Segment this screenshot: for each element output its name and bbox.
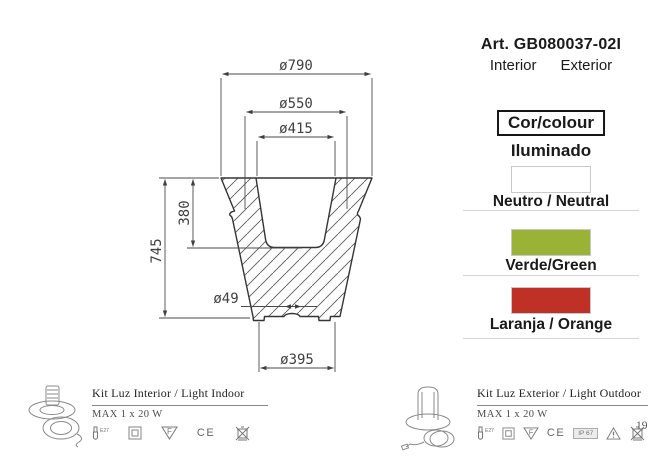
indoor-max-power: MAX 1 x 20 W — [92, 409, 292, 420]
svg-text:F: F — [529, 427, 534, 436]
ce-mark: CE — [547, 427, 565, 439]
swatch-orange — [511, 287, 591, 314]
swatch-neutral-label: Neutro / Neutral — [438, 193, 663, 211]
colour-header-box: Cor/colour — [497, 110, 605, 136]
divider — [463, 210, 639, 211]
indoor-light-illustration — [20, 384, 88, 448]
outdoor-light-kit-block: Kit Luz Exterior / Light Outdoor MAX 1 x… — [394, 382, 656, 454]
class-ii-icon — [502, 427, 515, 440]
illuminated-label: Iluminado — [438, 141, 663, 161]
swatch-orange-label: Laranja / Orange — [438, 316, 663, 334]
dim-top-diameter: ø790 — [279, 58, 313, 74]
swatch-green — [511, 229, 591, 256]
page-number: 19 — [636, 420, 648, 432]
dim-opening-diameter: ø415 — [279, 121, 313, 137]
divider — [463, 338, 639, 339]
divider — [477, 405, 648, 406]
warning-triangle-icon — [606, 427, 621, 440]
ip67-badge: IP 67 — [573, 428, 598, 439]
catalog-page: ø790 ø550 ø415 380 745 ø49 ø395 Art. GB0… — [0, 0, 663, 457]
dim-base-diameter: ø395 — [280, 352, 314, 368]
outdoor-light-illustration — [396, 384, 468, 452]
swatch-neutral — [511, 166, 591, 193]
interior-label: Interior — [490, 57, 537, 74]
e27-label: E27 — [100, 428, 109, 434]
outdoor-max-power: MAX 1 x 20 W — [477, 409, 655, 420]
exterior-label: Exterior — [561, 57, 613, 74]
f-mark-icon: F — [161, 426, 178, 440]
outdoor-certification-icons: E27 F CE IP 67 — [477, 425, 655, 441]
class-ii-icon — [128, 426, 142, 440]
lamp-e27-icon: E27 — [92, 426, 109, 441]
ce-mark: CE — [197, 427, 215, 439]
indoor-light-kit-block: Kit Luz Interior / Light Indoor MAX 1 x … — [20, 382, 310, 452]
dim-drain-diameter: ø49 — [213, 291, 238, 307]
divider — [92, 405, 268, 406]
article-number: Art. GB080037-02I — [438, 36, 663, 54]
svg-text:F: F — [167, 427, 172, 436]
f-mark-icon: F — [523, 427, 539, 440]
indoor-kit-title: Kit Luz Interior / Light Indoor — [92, 386, 292, 401]
dim-rim-diameter: ø550 — [279, 96, 313, 112]
swatch-green-label: Verde/Green — [438, 257, 663, 275]
outdoor-kit-title: Kit Luz Exterior / Light Outdoor — [477, 386, 655, 401]
color-options-panel: Art. GB080037-02I Interior Exterior Cor/… — [438, 36, 663, 356]
weee-bin-icon — [234, 425, 251, 441]
dim-total-height: 745 — [149, 238, 165, 263]
dim-inner-depth: 380 — [177, 200, 193, 225]
pot-body — [221, 178, 372, 321]
e27-label: E27 — [485, 428, 494, 434]
indoor-certification-icons: E27 F CE — [92, 425, 292, 441]
divider — [463, 275, 639, 276]
lamp-e27-icon: E27 — [477, 426, 494, 441]
usage-labels: Interior Exterior — [438, 57, 663, 74]
